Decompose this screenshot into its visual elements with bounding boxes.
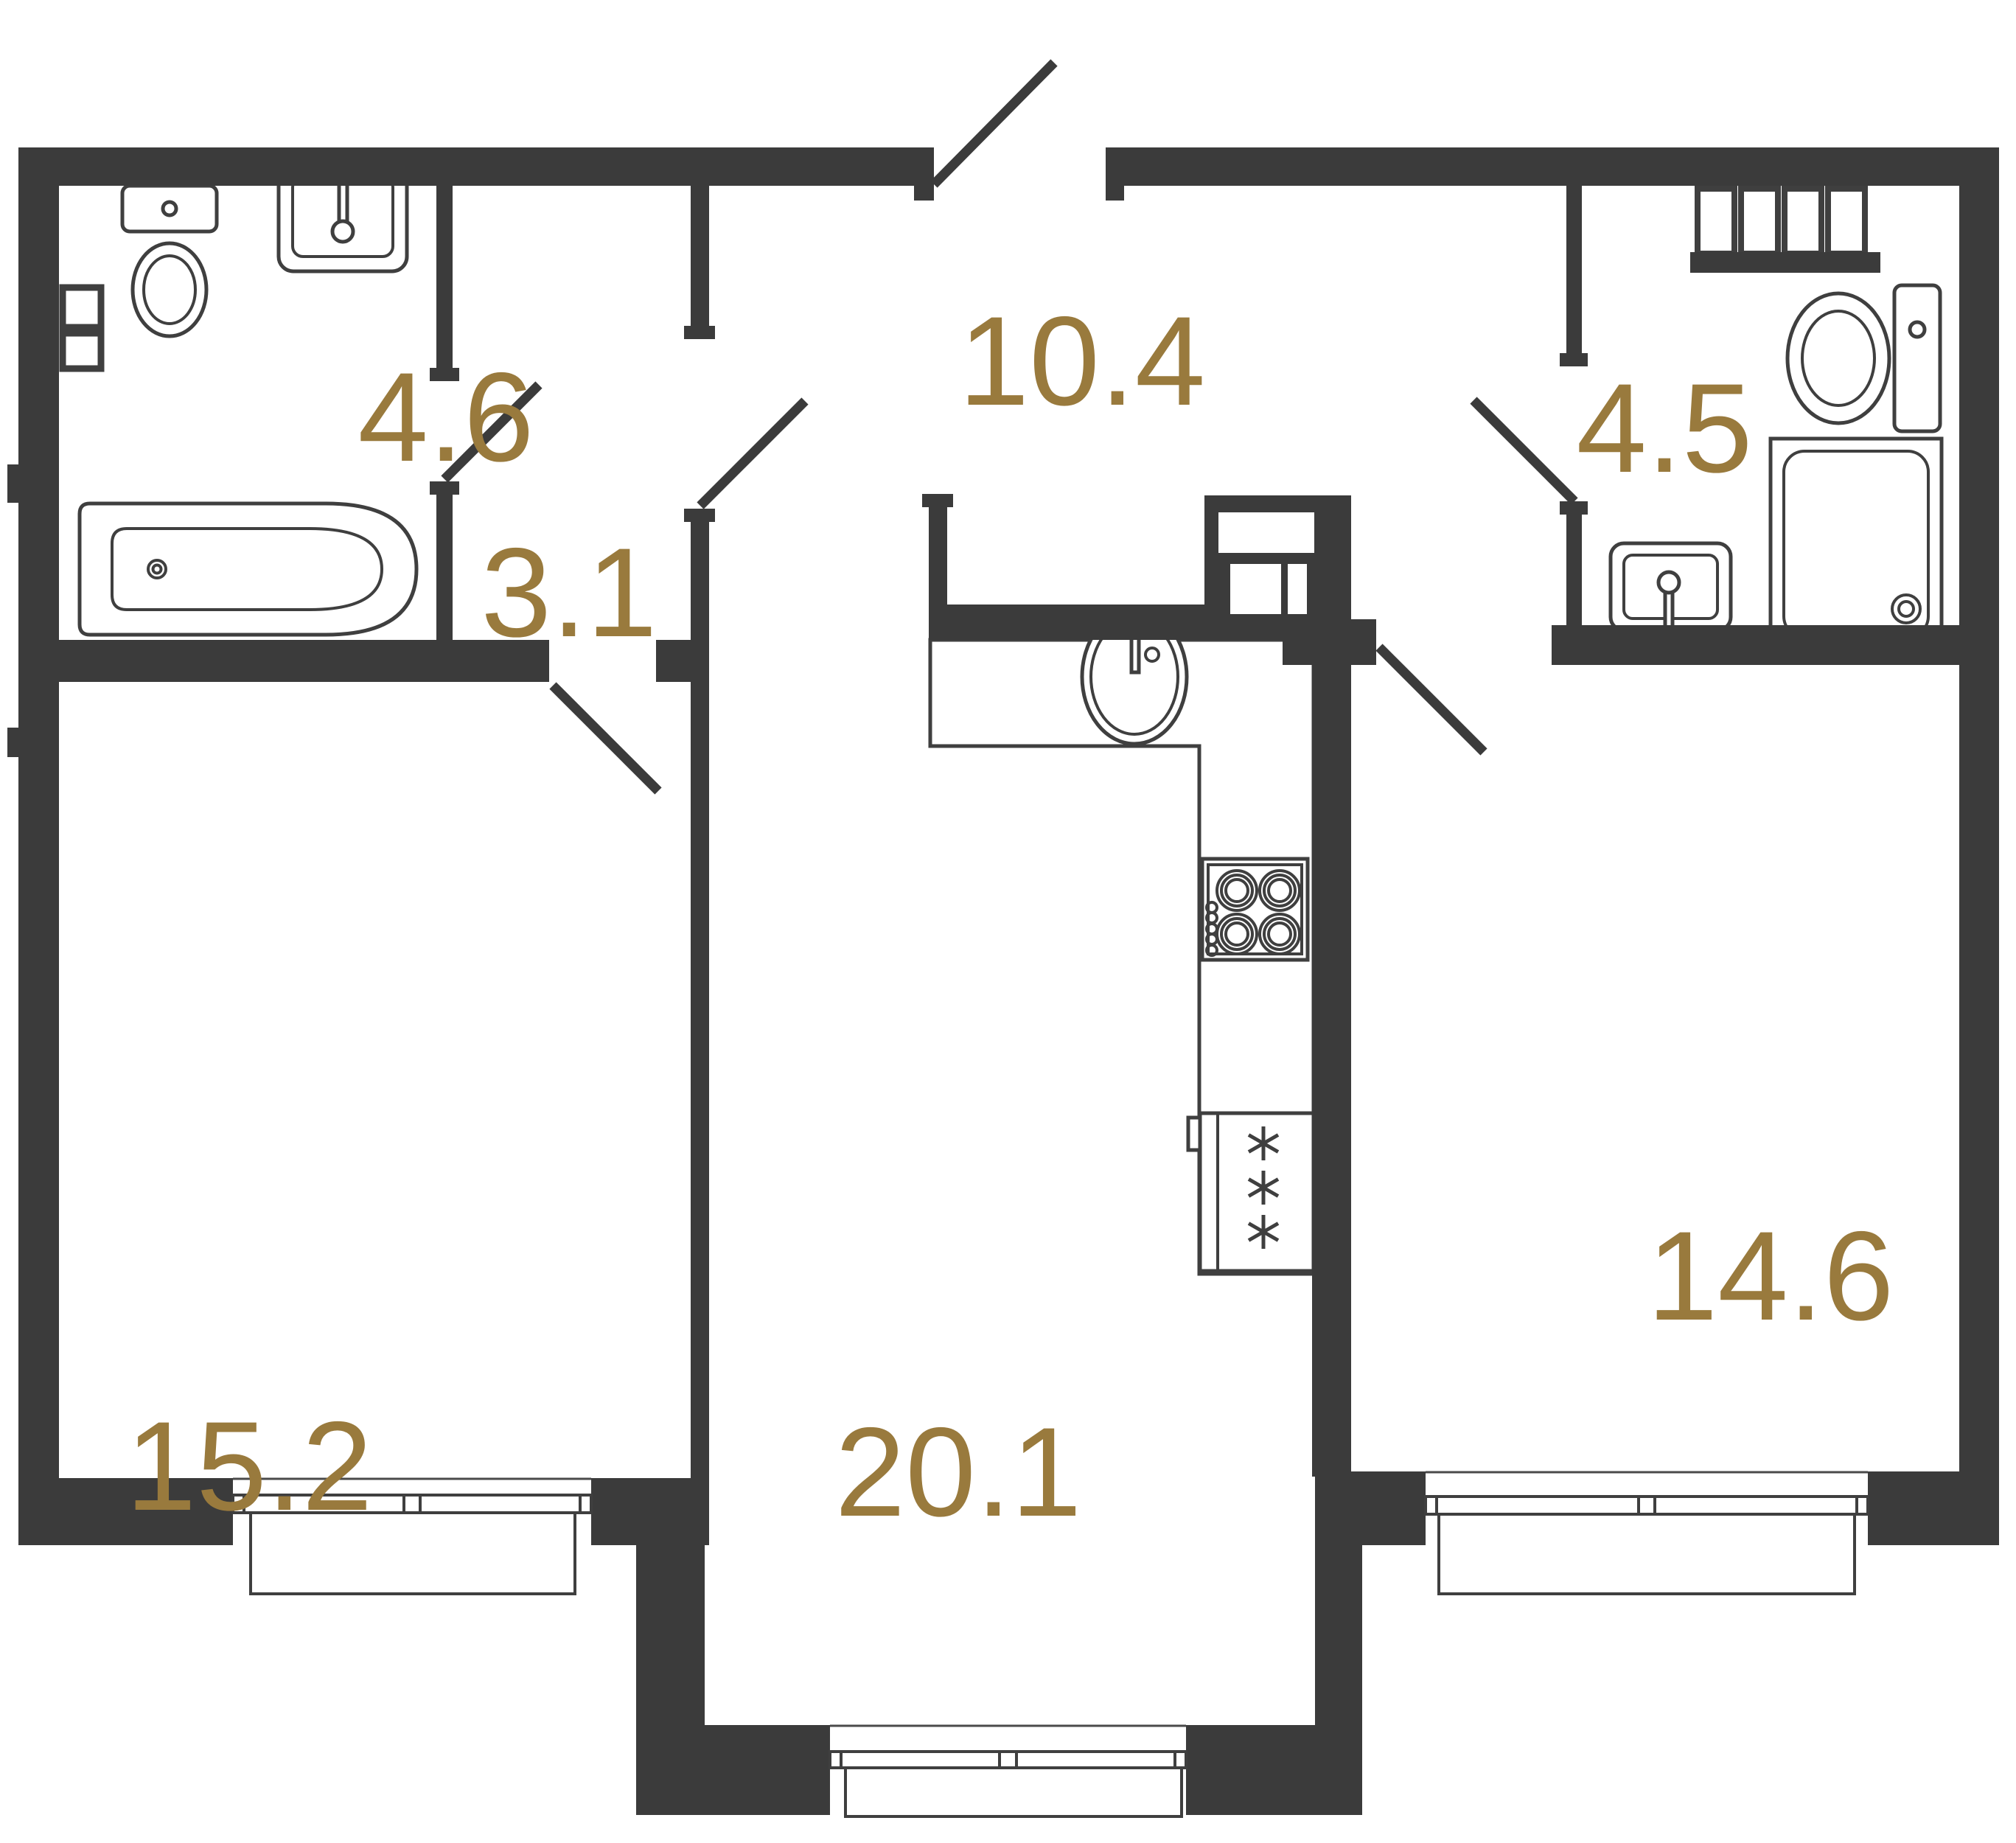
entrance-jamb-left: [914, 186, 934, 201]
kitchen-window: [830, 1726, 1186, 1816]
wall-right-outer: [1959, 147, 1999, 1545]
wall-showerroom-left-lower: [1566, 501, 1582, 625]
wall-hall-bottom: [18, 640, 549, 682]
room-label-showerroom: 4.5: [1576, 358, 1752, 499]
sink-2-icon: [1611, 543, 1731, 634]
floor-plan: 4.6 3.1 10.4 4.5 15.2 20.1 14.6: [0, 0, 2016, 1843]
wall-left-outer: [18, 147, 59, 1545]
wall-box: [63, 333, 101, 369]
wall-bottom-bedroom: [1315, 1471, 1426, 1545]
room-label-bathroom: 4.6: [357, 346, 534, 488]
wall-kitchen-bedroom: [1312, 665, 1351, 1477]
bedroom-door-leaf: [1379, 647, 1484, 752]
wall-corridor-bedroom-tick: [1283, 619, 1376, 665]
wall-nub: [7, 728, 19, 757]
radiator-section: [1698, 189, 1734, 254]
toilet-icon: [122, 186, 217, 336]
bathtub-rim: [80, 504, 416, 635]
hall-door-leaf: [700, 401, 805, 506]
fridge-handle: [1188, 1118, 1200, 1150]
room-label-bedroom: 14.6: [1647, 1205, 1894, 1347]
wall-corridor-kitchen: [929, 605, 1204, 640]
wall-foot: [922, 494, 953, 507]
wall-box: [63, 288, 101, 327]
room-door-leaf: [553, 686, 658, 791]
toilet-2-icon: [1787, 285, 1940, 431]
bathtub-icon: [80, 504, 416, 635]
room-label-hall: 3.1: [481, 522, 657, 663]
wall-foot: [684, 326, 715, 339]
bedroom-window: [1426, 1472, 1868, 1594]
wall-showerroom-left-upper: [1566, 186, 1582, 366]
wall-hall-bottom-tick: [656, 640, 691, 682]
wall-top-left: [18, 147, 934, 186]
wall-top-right: [1106, 147, 1999, 186]
wall-showerroom-bottom: [1552, 625, 1959, 665]
towel-radiator-icon: [1690, 189, 1880, 273]
toilet-button: [1910, 322, 1925, 337]
wall-nub: [7, 464, 19, 503]
radiator-section: [1741, 189, 1778, 254]
duct-opening: [1288, 564, 1307, 614]
duct-opening: [1230, 564, 1281, 614]
room-label-corridor: 10.4: [959, 290, 1206, 432]
wall-foot: [684, 509, 715, 522]
room-label-kitchen-living: 20.1: [835, 1401, 1082, 1543]
wall-hall-corridor-lower: [691, 509, 709, 1545]
radiator-section: [1828, 189, 1865, 254]
toilet-button: [163, 202, 176, 215]
fridge-icon: [1188, 1113, 1314, 1271]
wall-boxes-icon: [63, 288, 101, 369]
entrance-door-leaf: [934, 63, 1054, 184]
room-label-room: 15.2: [126, 1396, 373, 1537]
wall-bottom-kitchen: [636, 1725, 830, 1815]
showerroom-door-leaf: [1473, 400, 1574, 501]
sink-drain: [1659, 572, 1679, 593]
labels-layer: 4.6 3.1 10.4 4.5 15.2 20.1 14.6: [126, 290, 1894, 1543]
wall-hall-corridor-upper: [691, 186, 709, 339]
window-sill: [1439, 1514, 1855, 1594]
cooktop-icon: [1202, 859, 1308, 960]
wall-foot: [1560, 501, 1588, 515]
radiator-rail: [1690, 252, 1880, 273]
entrance-jamb-right: [1106, 186, 1124, 201]
wall-bottom-room15: [591, 1478, 705, 1545]
duct-opening: [1218, 512, 1314, 553]
radiator-section: [1785, 189, 1821, 254]
shower-tray-icon: [1771, 439, 1942, 649]
sink-drain: [332, 221, 353, 242]
toilet-tank: [1894, 285, 1940, 431]
floor-plan-svg: 4.6 3.1 10.4 4.5 15.2 20.1 14.6: [0, 0, 2016, 1843]
window-sill: [845, 1768, 1182, 1816]
